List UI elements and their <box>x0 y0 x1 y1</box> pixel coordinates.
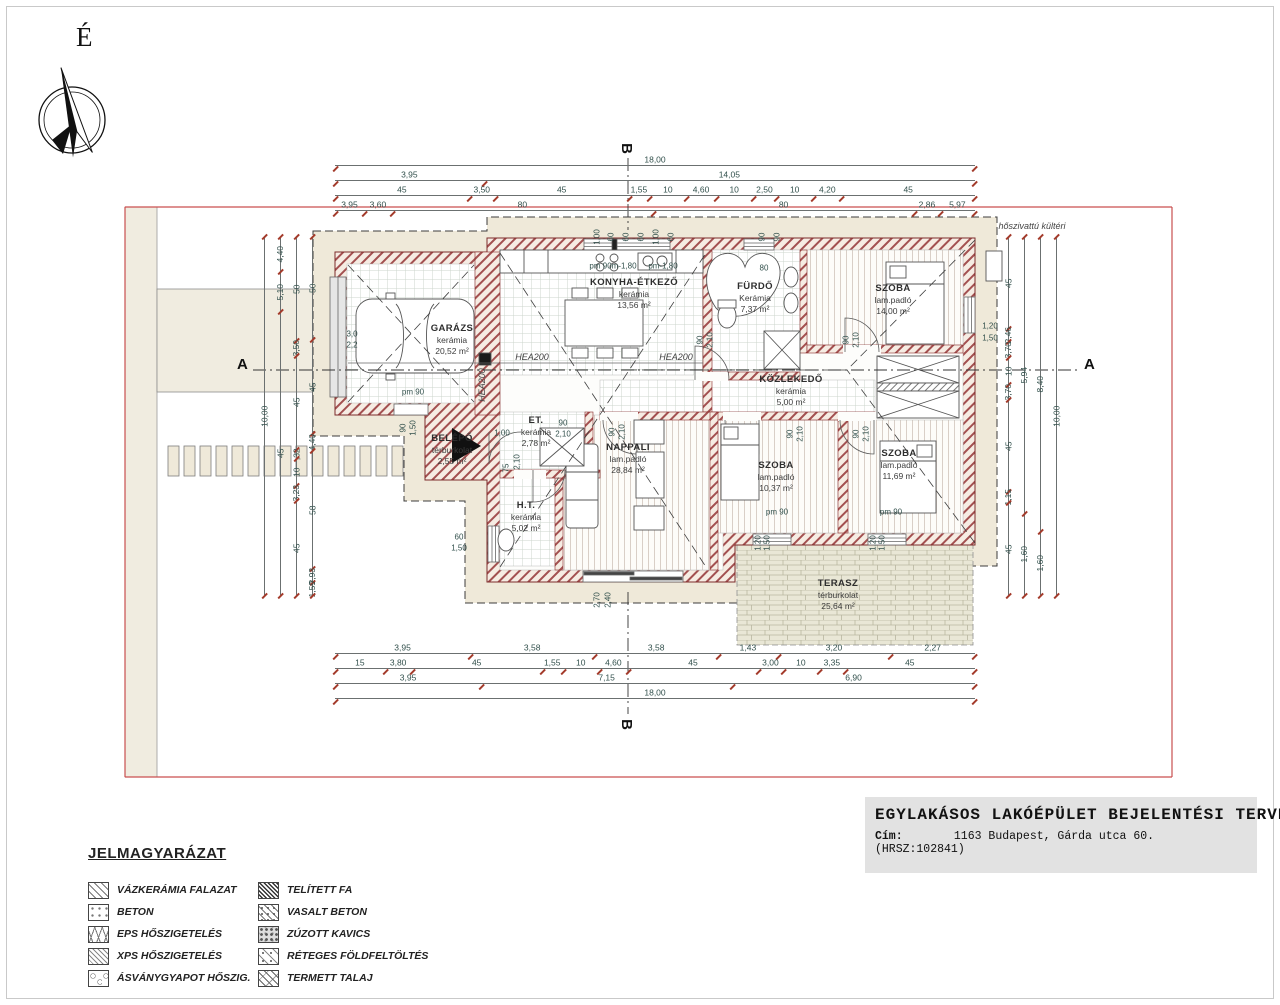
dim-label: 5,97 <box>949 200 966 209</box>
dim-segment: 1,60 <box>1034 532 1047 595</box>
room-label: BELÉPŐtérburkolat2,55 m² <box>431 433 472 467</box>
room-finish: Kerámia <box>737 293 773 304</box>
dim-segment: 10 <box>716 187 753 196</box>
dim-segment: 5,10 <box>274 272 287 312</box>
dim-label: 1,60 <box>1036 555 1045 572</box>
dim-label: 3,35 <box>824 658 841 667</box>
dim-label: 7,15 <box>598 673 615 682</box>
dim-segment: 18,00 <box>335 157 975 166</box>
room-finish: kerámia <box>590 289 678 300</box>
dim-label: 1,43 <box>740 643 757 652</box>
room-area: 5,02 m² <box>511 523 541 534</box>
dim-segment: 3,80 <box>385 660 412 669</box>
dim-label: 18,00 <box>644 155 665 164</box>
dim-label: 45 <box>903 185 912 194</box>
title-block: EGYLAKÁSOS LAKÓÉPÜLET BEJELENTÉSI TERVE … <box>865 797 1257 873</box>
dim-segment: 1,59 <box>306 583 319 595</box>
dim-segment: 10 <box>563 660 599 669</box>
dim-label: 45 <box>276 449 285 458</box>
wardrobes <box>877 356 959 418</box>
dim-label: 10 <box>663 185 672 194</box>
annotation: 2,10 <box>555 430 571 439</box>
dim-label: 45 <box>472 658 481 667</box>
annotation: 1,00 <box>652 229 661 245</box>
annotation: 2,10 <box>796 426 805 442</box>
dim-segment: 3,60 <box>364 202 392 211</box>
dim-label: 10 <box>796 658 805 667</box>
dim-label: 45 <box>397 185 406 194</box>
annotation: 2,10 <box>706 332 715 348</box>
room-finish: lam.padló <box>606 454 650 465</box>
dim-segment: 14,05 <box>484 172 975 181</box>
legend-column-2: TELÍTETT FA VASALT BETON ZÚZOTT KAVICS R… <box>258 879 428 989</box>
dim-label: 80 <box>518 200 527 209</box>
dim-segment: 10,00 <box>258 237 271 595</box>
dim-segment: 1,55 <box>542 660 563 669</box>
dim-label: 3,95 <box>341 200 358 209</box>
room-name: ET. <box>521 415 551 427</box>
dim-label: 45 <box>557 185 566 194</box>
dim-segment: 10,00 <box>1050 237 1063 595</box>
annotation: 2,10 <box>513 454 522 470</box>
room-finish: lam.padló <box>875 295 912 306</box>
annotation: 80 <box>760 264 769 273</box>
dim-label: 10 <box>790 185 799 194</box>
dim-chain-bottom-3: 3,957,156,90 <box>335 670 975 684</box>
annotation: 90 <box>842 336 851 345</box>
legend-item: TERMETT TALAJ <box>258 967 428 989</box>
room-name: BELÉPŐ <box>431 433 472 445</box>
dim-segment: 45 <box>306 340 319 434</box>
room-label: ET.kerámia2,78 m² <box>521 415 551 449</box>
dim-segment: 1,55 <box>629 187 650 196</box>
dim-label: 1,60 <box>1020 546 1029 563</box>
dim-segment: 4,40 <box>274 237 287 272</box>
room-area: 5,00 m² <box>759 397 822 408</box>
annotation: 1,00 <box>593 229 602 245</box>
dim-segment: 45 <box>335 187 469 196</box>
room-label: GARÁZSkerámia20,52 m² <box>431 323 474 357</box>
room-finish: térburkolat <box>818 590 858 601</box>
room-finish: kerámia <box>511 512 541 523</box>
legend-column-1: VÁZKERÁMIA FALAZAT BETON EPS HŐSZIGETELÉ… <box>88 879 250 989</box>
dim-label: 10 <box>576 658 585 667</box>
room-label: KÖZLEKEDŐkerámia5,00 m² <box>759 374 822 408</box>
dim-label: 14,05 <box>719 170 740 179</box>
dim-segment: 3,95 <box>335 675 481 684</box>
annotation: 90 <box>399 424 408 433</box>
annotation: 2,10 <box>618 424 627 440</box>
road-strip <box>125 207 157 777</box>
dim-label: 5,10 <box>276 284 285 301</box>
dim-segment: 5,97 <box>940 202 975 211</box>
dim-segment: 2,50 <box>753 187 776 196</box>
annotation: pm 90 <box>880 508 902 517</box>
dim-segment: 50 <box>290 237 303 341</box>
dim-segment: 3,95 <box>335 202 364 211</box>
room-area: 14,00 m² <box>875 306 912 317</box>
annotation: 1,50 <box>763 535 772 551</box>
room-area: 7,37 m² <box>737 304 773 315</box>
dim-label: 45 <box>905 658 914 667</box>
annotation: 2,10 <box>852 332 861 348</box>
dim-label: 45 <box>1004 278 1013 287</box>
dim-segment: 10 <box>290 459 303 487</box>
dim-chain-bottom-2: 153,80451,55104,60453,00103,3545 <box>335 655 975 669</box>
legend-item: XPS HŐSZIGETELÉS <box>88 945 250 967</box>
annotation: 75 <box>502 464 511 473</box>
section-marker-b-bottom: B <box>618 719 635 730</box>
dim-segment: 45 <box>495 187 629 196</box>
room-name: FÜRDŐ <box>737 281 773 293</box>
dim-segment: 10 <box>649 187 686 196</box>
room-area: 13,56 m² <box>590 300 678 311</box>
annotation: 90 <box>758 233 767 242</box>
room-finish: térburkolat <box>431 445 472 456</box>
dim-label: 4,60 <box>693 185 710 194</box>
dim-segment: 80 <box>392 202 653 211</box>
dim-chain-right-1: 452,463,70103,70451,1545 <box>1002 237 1015 595</box>
annotation: 90 <box>773 233 782 242</box>
dim-label: 8,40 <box>1036 376 1045 393</box>
legend-item: TELÍTETT FA <box>258 879 428 901</box>
dim-chain-bottom-total: 18,00 <box>335 685 975 699</box>
room-label: TERASZtérburkolat25,64 m² <box>818 578 858 612</box>
legend-heading: JELMAGYARÁZAT <box>88 845 508 862</box>
dim-label: 1,59 <box>308 581 317 598</box>
address-label: Cím: <box>875 830 947 843</box>
room-label: KONYHA-ÉTKEZŐkerámia13,56 m² <box>590 277 678 311</box>
dim-label: 45 <box>292 543 301 552</box>
dim-label: 10 <box>729 185 738 194</box>
room-label: SZOBAlam.padló10,37 m² <box>758 460 795 494</box>
dim-label: 3,58 <box>524 643 541 652</box>
hatch-swatch-eps-insulation <box>88 926 109 943</box>
annotation: 1,50 <box>878 535 887 551</box>
dim-segment: 4,20 <box>813 187 841 196</box>
hatch-swatch-mineral-wool <box>88 970 109 987</box>
legend: JELMAGYARÁZAT VÁZKERÁMIA FALAZAT BETON E… <box>88 845 508 876</box>
annotation: 1,50 <box>451 544 467 553</box>
dim-chain-left-total: 10,00 <box>258 237 271 595</box>
dim-label: 45 <box>1004 441 1013 450</box>
dim-chain-bottom-1: 3,953,583,581,433,202,27 <box>335 640 975 654</box>
annotation: 2,70 <box>593 592 602 608</box>
dim-label: 5,94 <box>1020 367 1029 384</box>
room-finish: kerámia <box>759 386 822 397</box>
dim-segment: 45 <box>845 660 975 669</box>
hatch-swatch-reinforced-concrete <box>258 904 279 921</box>
dim-segment: 2,27 <box>890 645 975 654</box>
dim-label: 80 <box>779 200 788 209</box>
dim-segment: 5,94 <box>1018 237 1031 514</box>
dim-chain-right-3: 8,401,60 <box>1034 237 1047 595</box>
dim-segment: 3,50 <box>469 187 495 196</box>
room-finish: kerámia <box>431 335 474 346</box>
room-name: SZOBA <box>875 283 912 295</box>
dim-segment: 10 <box>783 660 819 669</box>
dim-label: 10 <box>1004 366 1013 375</box>
dim-segment: 3,58 <box>594 645 718 654</box>
dim-segment: 45 <box>1002 237 1015 329</box>
dim-chain-left-3: 503,5045,32103,2345 <box>290 237 303 595</box>
dim-segment: 1,60 <box>1018 514 1031 595</box>
room-name: H.T. <box>511 500 541 512</box>
dim-label: 6,90 <box>845 673 862 682</box>
dim-segment: 50 <box>306 237 319 340</box>
room-area: 28,84 m² <box>606 465 650 476</box>
room-label: NAPPALIlam.padló28,84 m² <box>606 442 650 476</box>
annotation: HEA200 <box>477 368 487 402</box>
annotation: 90 <box>786 430 795 439</box>
dim-label: 3,50 <box>473 185 490 194</box>
dim-segment: 45 <box>1002 503 1015 595</box>
hatch-swatch-brick-masonry <box>88 882 109 899</box>
annotation: 60 <box>455 533 464 542</box>
room-label: SZOBAlam.padló14,00 m² <box>875 283 912 317</box>
dim-segment: 2,86 <box>914 202 940 211</box>
room-name: SZOBA <box>881 448 918 460</box>
legend-item: ZÚZOTT KAVICS <box>258 923 428 945</box>
annotation: 3,0 <box>346 330 357 339</box>
annotation: 2,40 <box>604 592 613 608</box>
room-name: KÖZLEKEDŐ <box>759 374 822 386</box>
room-finish: lam.padló <box>758 472 795 483</box>
room-area: 10,37 m² <box>758 483 795 494</box>
dim-label: 18,00 <box>644 688 665 697</box>
shower <box>764 331 800 369</box>
dim-label: 1,55 <box>544 658 561 667</box>
dim-label: 10,00 <box>1052 405 1061 426</box>
room-name: SZOBA <box>758 460 795 472</box>
annotation: 60 <box>637 233 646 242</box>
dim-segment: 10 <box>776 187 813 196</box>
dim-chain-left-2: 4,405,1045 <box>274 237 287 595</box>
dim-segment: 18,00 <box>335 690 975 699</box>
hall-floor <box>600 380 875 412</box>
dim-label: 2,50 <box>756 185 773 194</box>
bed-bedroom2 <box>721 424 759 500</box>
dim-label: 4,40 <box>276 246 285 263</box>
dim-label: 10,00 <box>260 405 269 426</box>
dim-label: 15 <box>355 658 364 667</box>
heat-pump-unit <box>986 251 1002 281</box>
room-label: FÜRDŐKerámia7,37 m² <box>737 281 773 315</box>
dim-segment: 45 <box>290 501 303 595</box>
dim-segment: 45 <box>841 187 975 196</box>
room-finish: kerámia <box>521 427 551 438</box>
dim-segment: 80 <box>653 202 914 211</box>
dim-label: 50 <box>308 284 317 293</box>
legend-item: BETON <box>88 901 250 923</box>
room-area: 2,78 m² <box>521 438 551 449</box>
dim-chain-right-total: 10,00 <box>1050 237 1063 595</box>
dim-segment: 3,00 <box>758 660 783 669</box>
dim-label: 1,55 <box>631 185 648 194</box>
dim-label: 3,80 <box>390 658 407 667</box>
annotation: pm 90 <box>402 388 424 397</box>
bedroom1-window <box>964 297 975 333</box>
room-finish: lam.padló <box>881 460 918 471</box>
annotation: hőszivattú kültéri <box>998 221 1065 231</box>
room-label: H.T.kerámia5,02 m² <box>511 500 541 534</box>
annotation: 90 <box>852 430 861 439</box>
room-area: 11,69 m² <box>881 471 918 482</box>
legend-item: RÉTEGES FÖLDFELTÖLTÉS <box>258 945 428 967</box>
annotation: 1,00 <box>494 429 510 438</box>
dim-chain-top-2: 3,9514,05 <box>335 167 975 181</box>
floor-plan-sheet: É A A B B 18,00 3,9514,05 453,50451,5510… <box>0 0 1280 1005</box>
room-name: GARÁZS <box>431 323 474 335</box>
dim-label: 3,58 <box>648 643 665 652</box>
dim-label: 3,20 <box>826 643 843 652</box>
room-area: 20,52 m² <box>431 346 474 357</box>
annotation: pm 90 <box>766 508 788 517</box>
dim-segment: 3,58 <box>470 645 594 654</box>
annotation: 1,50 <box>982 334 998 343</box>
dim-label: 45 <box>292 398 301 407</box>
legend-item: ÁSVÁNYGYAPOT HŐSZIG. <box>88 967 250 989</box>
room-label: SZOBAlam.padló11,69 m² <box>881 448 918 482</box>
dim-segment: 4,60 <box>686 187 715 196</box>
drawing-title: EGYLAKÁSOS LAKÓÉPÜLET BEJELENTÉSI TERVE <box>875 806 1247 824</box>
hatch-swatch-crushed-gravel <box>258 926 279 943</box>
legend-item: EPS HŐSZIGETELÉS <box>88 923 250 945</box>
dim-label: 4,20 <box>819 185 836 194</box>
dim-label: 10 <box>292 468 301 477</box>
dim-label: 3,95 <box>400 673 417 682</box>
dim-segment: 15 <box>335 660 385 669</box>
dim-segment: 45 <box>1002 400 1015 492</box>
room-name: TERASZ <box>818 578 858 590</box>
annotation: 1,50 <box>409 420 418 436</box>
annotation: 60 <box>667 233 676 242</box>
dim-chain-top-4: 3,953,6080802,865,97 <box>335 197 975 211</box>
dim-chain-top-3: 453,50451,55104,60102,50104,2045 <box>335 182 975 196</box>
dim-segment: 45 <box>412 660 542 669</box>
dim-label: 3,95 <box>394 643 411 652</box>
annotation: 60 <box>622 233 631 242</box>
room-area: 25,64 m² <box>818 601 858 612</box>
annotation: 60 <box>607 233 616 242</box>
hatch-swatch-layered-fill <box>258 948 279 965</box>
annotation: HEA200 <box>515 352 549 362</box>
annotation: 1,20 <box>869 535 878 551</box>
dim-label: 3,60 <box>370 200 387 209</box>
dim-label: 45 <box>688 658 697 667</box>
dim-segment: 4,60 <box>599 660 628 669</box>
dim-label: 2,86 <box>919 200 936 209</box>
dim-segment: 45 <box>628 660 758 669</box>
dim-segment: 6,90 <box>732 675 975 684</box>
dim-chain-right-2: 5,941,60 <box>1018 237 1031 595</box>
room-area: 2,55 m² <box>431 456 472 467</box>
room-name: KONYHA-ÉTKEZŐ <box>590 277 678 289</box>
dim-label: 45 <box>308 382 317 391</box>
hatch-swatch-xps-insulation <box>88 948 109 965</box>
annotation: 90 <box>608 428 617 437</box>
dim-segment: 10 <box>1002 358 1015 385</box>
annotation: 1,20 <box>754 535 763 551</box>
annotation: pm-1,80 <box>648 262 677 271</box>
dim-label: 50 <box>292 284 301 293</box>
dim-label: 3,95 <box>401 170 418 179</box>
dim-label: 2,27 <box>924 643 941 652</box>
annotation: 2,10 <box>862 426 871 442</box>
dim-label: 4,60 <box>605 658 622 667</box>
dim-segment: 1,43 <box>718 645 777 654</box>
legend-item: VÁZKERÁMIA FALAZAT <box>88 879 250 901</box>
hatch-swatch-saturated-wood <box>258 882 279 899</box>
dim-chain-top-total: 18,00 <box>335 152 975 166</box>
annotation: 90 <box>559 419 568 428</box>
room-name: NAPPALI <box>606 442 650 454</box>
north-arrow <box>39 65 105 157</box>
hatch-swatch-natural-soil <box>258 970 279 987</box>
hatch-swatch-concrete <box>88 904 109 921</box>
dim-segment: 45 <box>274 312 287 595</box>
dim-label: 58 <box>308 505 317 514</box>
dim-segment: 58 <box>306 451 319 569</box>
dim-segment: 45 <box>290 356 303 450</box>
dim-segment: 3,95 <box>335 172 484 181</box>
annotation: 1,20 <box>982 322 998 331</box>
dim-segment: 3,95 <box>335 645 470 654</box>
toilet <box>718 300 736 328</box>
annotation: 2,2 <box>346 341 357 350</box>
dim-segment: 3,20 <box>778 645 891 654</box>
annotation: 90 <box>696 336 705 345</box>
section-marker-a-left: A <box>237 356 248 373</box>
dim-label: 45 <box>1004 544 1013 553</box>
dim-segment: 7,15 <box>481 675 732 684</box>
north-label: É <box>76 22 93 53</box>
dim-segment: 8,40 <box>1034 237 1047 532</box>
section-marker-a-right: A <box>1084 356 1095 373</box>
dim-label: 3,00 <box>762 658 779 667</box>
annotation: HEA200 <box>659 352 693 362</box>
annotation: pm 90m-1,80 <box>589 262 636 271</box>
dim-chain-left-4: 50454,40582,931,59 <box>306 237 319 595</box>
dim-segment: 3,35 <box>819 660 845 669</box>
legend-item: VASALT BETON <box>258 901 428 923</box>
